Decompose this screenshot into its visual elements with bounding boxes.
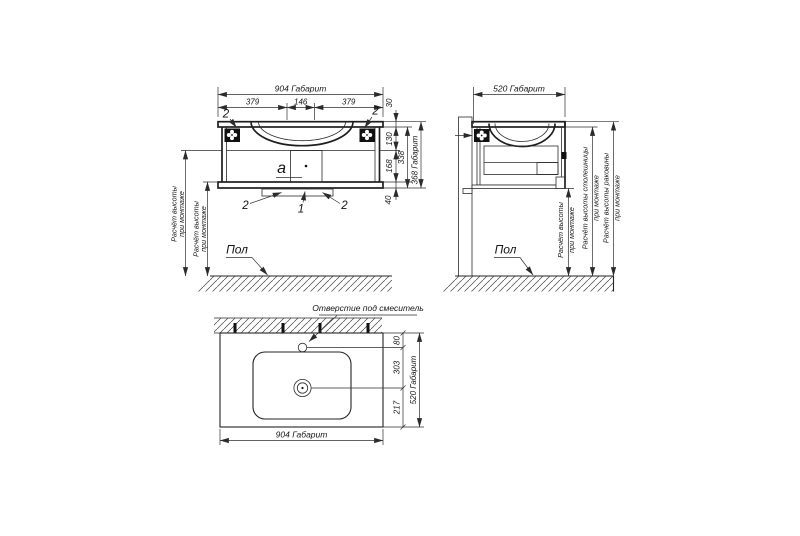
- front-bottom-panel: [218, 182, 383, 188]
- mount-bracket-icon: [360, 129, 376, 143]
- plan-countertop: [220, 333, 383, 427]
- side-height-dim-1-row2: при монтаже: [567, 207, 576, 253]
- side-drawer: [484, 146, 558, 175]
- side-depth-total-dim: 520 Габарит: [493, 84, 545, 94]
- front-dim-rail-height: 40: [384, 195, 393, 204]
- side-height-dim-1-row1: Расчёт высоты: [556, 201, 565, 257]
- side-height-dim-2-row1: Расчёт высоты столешницы: [581, 146, 590, 249]
- side-height-dim-3-row2: при монтаже: [613, 175, 622, 221]
- side-view: 520 Габарит Расчёт высоты при монтаже Ра…: [440, 84, 622, 292]
- front-width-total-dim: 904 Габарит: [275, 84, 327, 94]
- front-dim-total-height: 368 Габарит: [411, 135, 420, 184]
- front-width-right-dim: 379: [342, 98, 356, 107]
- plan-dim-front-offset: 217: [393, 400, 402, 415]
- plan-wall-mount-tick: [367, 323, 370, 334]
- side-rail: [556, 177, 565, 189]
- plan-wall-mount-tick: [282, 323, 285, 334]
- side-floor: [440, 276, 614, 292]
- plan-dim-faucet-offset: 80: [393, 336, 402, 345]
- front-view: 904 Габарит 379 146 379 2 2 30 130 168 4…: [170, 84, 427, 292]
- front-dim-lower-height: 168: [385, 159, 394, 173]
- drawing-canvas: 904 Габарит 379 146 379 2 2 30 130 168 4…: [0, 0, 800, 536]
- side-lower-mount: [463, 189, 472, 194]
- front-dim-upper-height: 130: [385, 132, 394, 146]
- front-width-left-dim: 379: [246, 98, 260, 107]
- side-dimensions: 520 Габарит Расчёт высоты при монтаже Ра…: [474, 84, 622, 277]
- front-floor-label: Пол: [226, 243, 248, 257]
- mount-bracket-icon: [474, 129, 490, 142]
- front-callout-rail-center: 1: [298, 204, 304, 216]
- front-mount-rail: [262, 189, 333, 196]
- front-mount-height-b-row2: при монтаже: [199, 206, 208, 252]
- front-cabinet: [218, 122, 383, 196]
- plan-wall-band: [214, 318, 382, 334]
- side-fitting: [562, 152, 567, 159]
- side-height-dim-2-row2: при монтаже: [592, 175, 601, 221]
- plan-dim-drain-offset: 303: [393, 360, 402, 374]
- front-dim-countertop-thickness: 30: [385, 98, 394, 107]
- front-left-dimensions: Расчёт высоты при монтаже Расчёт высоты …: [170, 151, 223, 277]
- front-callout-siphon: a: [277, 160, 286, 177]
- mount-bracket-icon: [225, 129, 241, 143]
- side-floor-label: Пол: [495, 243, 517, 257]
- front-callout-bracket-left: 2: [222, 109, 230, 121]
- plan-wall-mount-tick: [234, 323, 237, 334]
- front-right-dimensions: 30 130 168 40 338 368 Габарит: [380, 98, 427, 204]
- front-callout-bracket-right: 2: [371, 106, 379, 118]
- plan-dim-depth-total: 520 Габарит: [409, 355, 418, 404]
- front-countertop: [218, 122, 383, 127]
- side-countertop: [472, 122, 565, 127]
- front-width-center-dim: 146: [294, 98, 308, 107]
- front-callout-rail-right: 2: [340, 200, 348, 212]
- front-callout-rail-left: 2: [241, 200, 249, 212]
- side-wall: [459, 117, 473, 276]
- front-mount-height-a-row2: при монтаже: [177, 191, 186, 237]
- plan-faucet-hole-label: Отверстие под смеситель: [312, 303, 423, 313]
- front-floor: [197, 276, 392, 292]
- vanity-technical-drawing: 904 Габарит 379 146 379 2 2 30 130 168 4…: [0, 0, 800, 536]
- plan-dim-width-total: 904 Габарит: [276, 430, 328, 440]
- plan-view: Отверстие под смеситель 80 303 217 520 Г…: [214, 303, 424, 445]
- front-dim-body-height: 338: [397, 150, 406, 164]
- side-height-dim-3-row1: Расчёт высоты раковины: [602, 152, 611, 243]
